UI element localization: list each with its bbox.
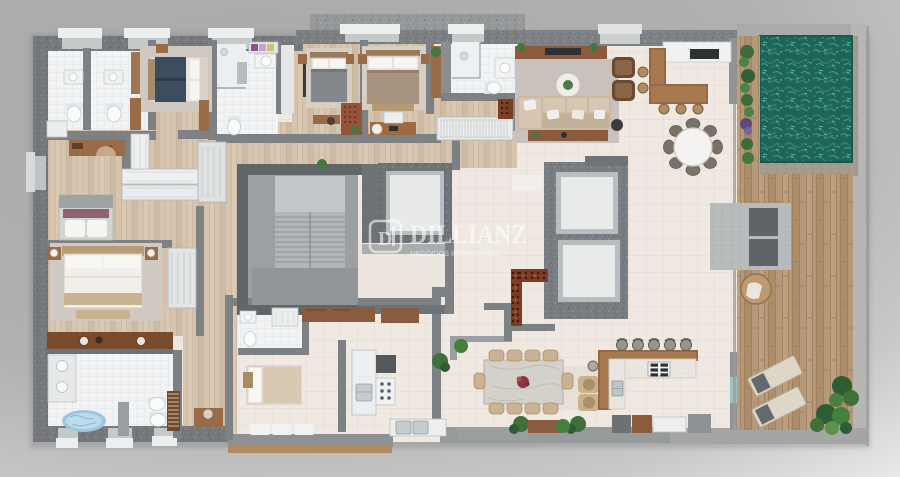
svg-text:D: D [378, 228, 392, 250]
svg-text:NEGÓCIOS IMOBILIÁRIOS: NEGÓCIOS IMOBILIÁRIOS [410, 249, 500, 258]
svg-text:DILLIANZ: DILLIANZ [410, 220, 527, 249]
